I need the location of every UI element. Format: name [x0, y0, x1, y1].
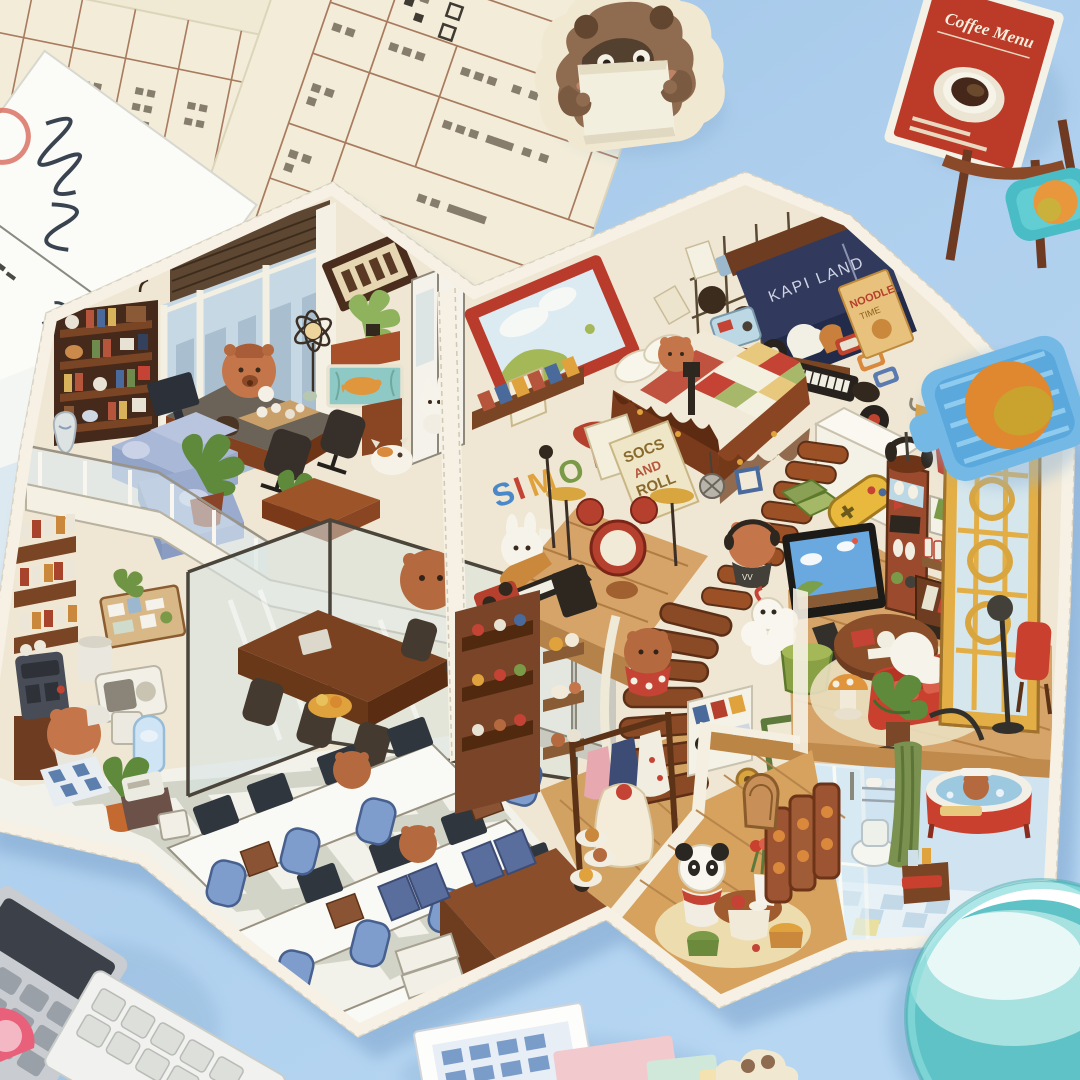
svg-text:VV: VV: [742, 573, 753, 582]
